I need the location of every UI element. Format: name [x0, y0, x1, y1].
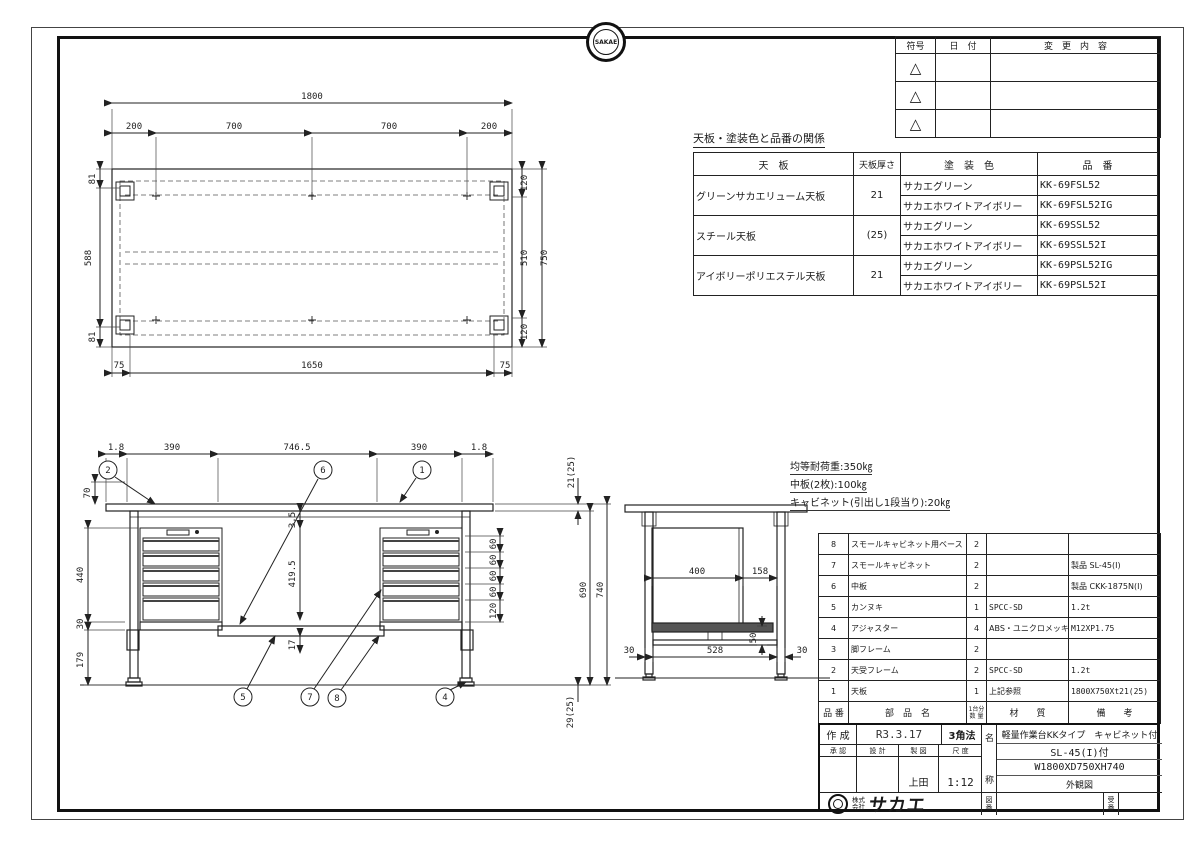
coating-col-top: 天 板	[694, 153, 854, 176]
dim-label: 390	[164, 443, 180, 453]
part-no: 6	[819, 576, 849, 597]
company-prefix-line2: 会社	[852, 804, 865, 811]
revision-date-cell	[936, 54, 991, 82]
part-material	[987, 534, 1069, 555]
coating-part-number: KK-69PSL52IG	[1038, 256, 1158, 276]
part-no: 2	[819, 660, 849, 681]
dim-label: 70	[83, 488, 93, 499]
revision-col-date: 日 付	[936, 37, 991, 54]
sakae-stamp-icon: SAKAE	[586, 22, 626, 62]
revision-change-cell	[991, 110, 1161, 138]
coating-part-number: KK-69SSL52	[1038, 216, 1158, 236]
dim-label: 200	[126, 122, 142, 132]
dim-label: 60	[489, 571, 499, 582]
part-no: 3	[819, 639, 849, 660]
part-remark: 1.2t	[1069, 597, 1161, 618]
part-name: スモールキャビネット用ベース	[849, 534, 967, 555]
revision-date-cell	[936, 110, 991, 138]
part-name: 天板	[849, 681, 967, 702]
part-name: スモールキャビネット	[849, 555, 967, 576]
balloon-number: 7	[307, 693, 312, 703]
top-view-legs	[116, 182, 508, 334]
part-qty: 1	[967, 597, 987, 618]
dim-label: 528	[707, 646, 723, 656]
coating-thickness: 21	[854, 176, 901, 216]
top-view-center-marks	[152, 192, 471, 324]
scale-value: 1:12	[939, 757, 982, 792]
dim-label: 60	[489, 587, 499, 598]
coating-part-number: KK-69SSL52I	[1038, 236, 1158, 256]
revision-col-sign: 符号	[896, 37, 936, 54]
drawing-no-label-2: 番	[982, 804, 996, 812]
top-view: 1800 200 700 700 200 81 588 81 120 510 1…	[55, 85, 625, 390]
part-remark	[1069, 639, 1161, 660]
part-name: 中板	[849, 576, 967, 597]
dim-label: 700	[226, 122, 242, 132]
part-qty: 2	[967, 660, 987, 681]
part-material: SPCC-SD	[987, 660, 1069, 681]
approve-label: 承 認	[820, 745, 857, 757]
note-shelf-load: 中板(2枚):100㎏	[790, 476, 867, 493]
dim-label: 50	[749, 633, 759, 644]
dim-label: 17	[288, 640, 298, 651]
name-label-top: 名	[985, 731, 994, 744]
dim-label: 75	[500, 361, 511, 371]
coating-part-number: KK-69FSL52IG	[1038, 196, 1158, 216]
dim-label: 440	[76, 567, 86, 583]
coating-top-name: スチール天板	[694, 216, 854, 256]
design-label: 設 計	[857, 745, 899, 757]
dim-label: 158	[752, 567, 768, 577]
design-value	[857, 757, 899, 792]
part-qty: 2	[967, 639, 987, 660]
revision-date-cell	[936, 82, 991, 110]
dim-label: 510	[520, 250, 530, 266]
part-material	[987, 555, 1069, 576]
part-name: アジャスター	[849, 618, 967, 639]
revision-change-cell	[991, 54, 1161, 82]
revision-triangle-icon: △	[896, 54, 936, 82]
title-block: 作 成 R3.3.17 3角法 承 認 設 計 製 図 尺 度 上田 1:12 …	[818, 723, 1160, 812]
side-view-dimension-labels: 400 158 50 30 528 30	[624, 567, 808, 656]
balloon-number: 2	[105, 466, 110, 476]
dim-label: 120	[520, 175, 530, 191]
product-size: W1800XD750XH740	[997, 760, 1162, 776]
dim-label: 179	[76, 652, 86, 668]
parts-col-no: 品 番	[819, 702, 849, 724]
top-view-dimension-lines	[100, 103, 542, 373]
dim-label: 1650	[301, 361, 323, 371]
revision-triangle-icon: △	[896, 82, 936, 110]
coating-top-name: アイボリーポリエステル天板	[694, 256, 854, 296]
approve-value	[820, 757, 857, 792]
parts-col-remark: 備 考	[1069, 702, 1161, 724]
part-remark: 1.2t	[1069, 660, 1161, 681]
product-model: SL-45(I)付	[997, 744, 1162, 760]
part-no: 7	[819, 555, 849, 576]
coating-top-name: グリーンサカエリューム天板	[694, 176, 854, 216]
part-qty: 2	[967, 576, 987, 597]
coating-table-title: 天板・塗装色と品番の関係	[693, 130, 825, 148]
revision-col-change: 変 更 内 容	[991, 37, 1161, 54]
coating-color: サカエホワイトアイボリー	[901, 276, 1038, 296]
coating-col-color: 塗 装 色	[901, 153, 1038, 176]
balloon-number: 6	[320, 466, 325, 476]
dim-label: 29(25)	[566, 696, 576, 729]
parts-col-material: 材 質	[987, 702, 1069, 724]
dim-label: 30	[76, 619, 86, 630]
name-label-bottom: 称	[985, 773, 994, 786]
revision-triangle-icon: △	[896, 110, 936, 138]
note-load-capacity: 均等耐荷重:350㎏	[790, 458, 872, 475]
part-remark: 1800X750Xt21(25)	[1069, 681, 1161, 702]
dim-label: 746.5	[283, 443, 310, 453]
coating-color: サカエホワイトアイボリー	[901, 236, 1038, 256]
dim-label: 30	[797, 646, 808, 656]
part-material: ABS・ユニクロメッキ	[987, 618, 1069, 639]
coating-col-thickness: 天板厚さ	[854, 153, 901, 176]
part-no: 1	[819, 681, 849, 702]
dim-label: 81	[88, 332, 98, 343]
drawing-sheet: SAKAE 符号 日 付 変 更 内 容 △ △ △ 天板・塗装色と品番の関係 …	[0, 0, 1200, 849]
coating-part-number: KK-69PSL52I	[1038, 276, 1158, 296]
drawing-no-label-1: 図	[982, 796, 996, 804]
top-view-extension-lines	[96, 109, 547, 377]
balloon-number: 1	[419, 466, 424, 476]
part-remark: M12XP1.75	[1069, 618, 1161, 639]
parts-col-name: 部 品 名	[849, 702, 967, 724]
drafter-name: 上田	[899, 757, 939, 792]
part-no: 4	[819, 618, 849, 639]
part-name: 天受フレーム	[849, 660, 967, 681]
dim-label: 1.8	[471, 443, 487, 453]
parts-col-qty-line2: 数 量	[967, 713, 986, 720]
part-qty: 4	[967, 618, 987, 639]
part-qty: 2	[967, 534, 987, 555]
part-no: 5	[819, 597, 849, 618]
balloon-number: 8	[334, 694, 339, 704]
balloon-number: 4	[442, 693, 447, 703]
coating-thickness: (25)	[854, 216, 901, 256]
coating-col-part: 品 番	[1038, 153, 1158, 176]
part-remark: 製品 CKK-1875N(I)	[1069, 576, 1161, 597]
dim-label: 21(25)	[567, 456, 577, 489]
dim-label: 60	[489, 539, 499, 550]
part-name: カンヌキ	[849, 597, 967, 618]
product-name: 軽量作業台KKタイプ キャビネット付	[997, 725, 1162, 744]
parts-col-qty-line1: 1台分	[967, 706, 986, 713]
created-label: 作 成	[820, 725, 857, 745]
part-material: SPCC-SD	[987, 597, 1069, 618]
part-material	[987, 576, 1069, 597]
dim-label: 81	[88, 174, 98, 185]
front-view-cabinets	[140, 528, 462, 622]
front-view: 1.8 390 746.5 390 1.8 70 440 30 179 3.5 …	[55, 440, 615, 730]
revision-change-cell	[991, 82, 1161, 110]
part-material	[987, 639, 1069, 660]
coating-color: サカエホワイトアイボリー	[901, 196, 1038, 216]
part-remark: 製品 SL-45(I)	[1069, 555, 1161, 576]
draft-label: 製 図	[899, 745, 939, 757]
dim-label: 60	[489, 555, 499, 566]
coating-color: サカエグリーン	[901, 176, 1038, 196]
revision-table: 符号 日 付 変 更 内 容 △ △ △	[895, 36, 1161, 138]
top-view-hidden-frame	[120, 181, 504, 335]
dim-label: 740	[596, 582, 606, 598]
coating-color: サカエグリーン	[901, 256, 1038, 276]
dim-label: 419.5	[288, 560, 298, 587]
dim-label: 588	[84, 250, 94, 266]
drawing-no-value	[997, 793, 1104, 815]
company-logo-text: サカエ	[867, 791, 928, 817]
scale-label: 尺 度	[939, 745, 982, 757]
part-remark	[1069, 534, 1161, 555]
dim-label: 750	[540, 250, 550, 266]
coating-part-number: KK-69FSL52	[1038, 176, 1158, 196]
coating-thickness: 21	[854, 256, 901, 296]
note-cabinet-load: キャビネット(引出し1段当り):20㎏	[790, 494, 950, 511]
dim-label: 120	[489, 603, 499, 619]
projection-method: 3角法	[942, 725, 982, 745]
dim-label: 700	[381, 122, 397, 132]
coating-table: 天 板 天板厚さ 塗 装 色 品 番 グリーンサカエリューム天板 21 サカエグ…	[693, 152, 1158, 296]
dim-label: 200	[481, 122, 497, 132]
created-date: R3.3.17	[857, 725, 942, 745]
part-qty: 2	[967, 555, 987, 576]
drawing-type: 外観図	[997, 776, 1162, 792]
part-material: 上記参照	[987, 681, 1069, 702]
sakae-emblem-icon	[828, 794, 848, 814]
parts-table: 8スモールキャビネット用ベース2 7スモールキャビネット2製品 SL-45(I)…	[818, 533, 1161, 724]
sakae-stamp-text: SAKAE	[593, 29, 619, 55]
ref-no-value	[1119, 793, 1162, 815]
dim-label: 120	[520, 324, 530, 340]
part-name: 脚フレーム	[849, 639, 967, 660]
ref-no-label-2: 番	[1104, 804, 1118, 812]
dim-label: 690	[579, 582, 589, 598]
part-no: 8	[819, 534, 849, 555]
dim-label: 30	[624, 646, 635, 656]
ref-no-label-1: 受	[1104, 796, 1118, 804]
top-view-dimension-labels: 1800 200 700 700 200 81 588 81 120 510 1…	[84, 92, 550, 371]
dim-label: 1.8	[108, 443, 124, 453]
dim-label: 1800	[301, 92, 323, 102]
dim-label: 75	[114, 361, 125, 371]
balloon-number: 5	[240, 693, 245, 703]
dim-label: 390	[411, 443, 427, 453]
dim-label: 400	[689, 567, 705, 577]
part-qty: 1	[967, 681, 987, 702]
coating-color: サカエグリーン	[901, 216, 1038, 236]
